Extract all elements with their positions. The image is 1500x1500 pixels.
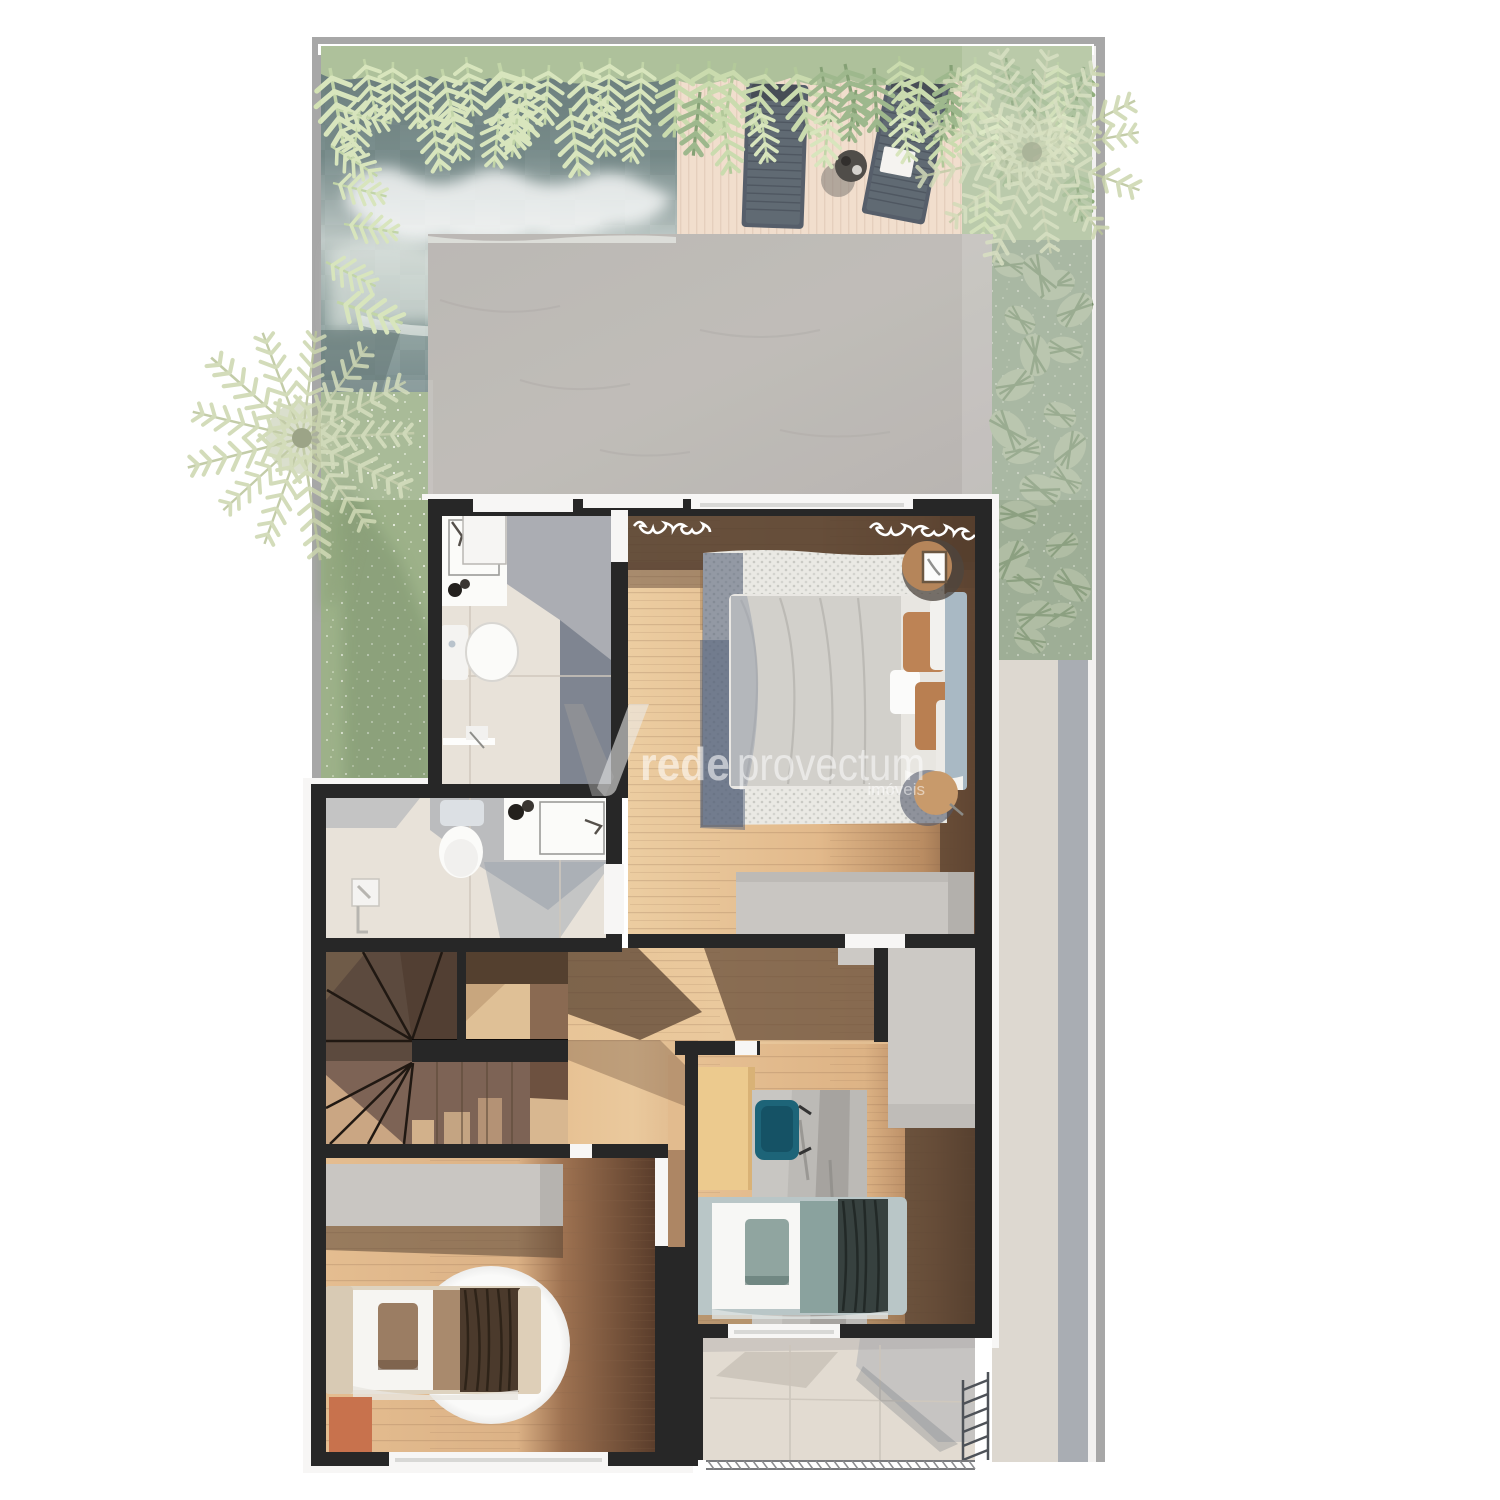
svg-text:imóveis: imóveis <box>867 780 925 799</box>
svg-text:rede: rede <box>640 738 730 790</box>
